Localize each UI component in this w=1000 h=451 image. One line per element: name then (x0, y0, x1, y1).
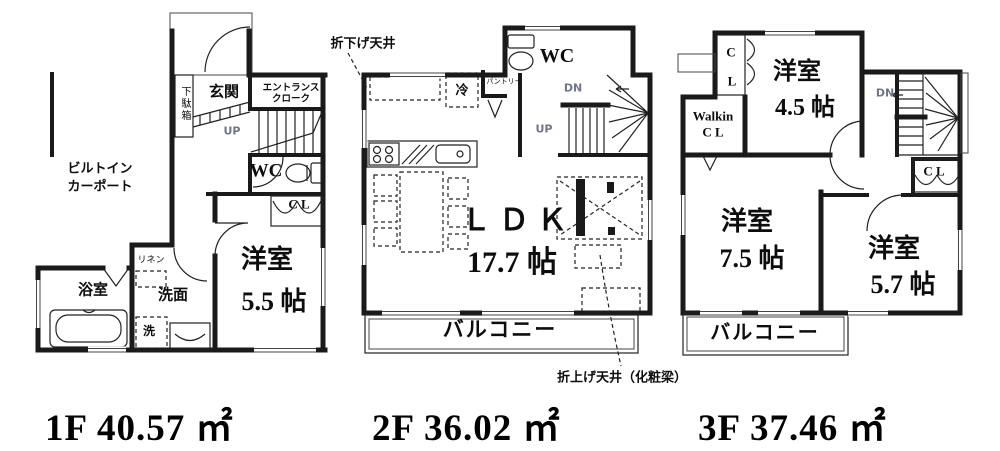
entrance-label: 玄関 (209, 86, 239, 101)
wc-label-2f: WC (540, 46, 574, 66)
floor-area-caption-1f: 1F 40.57 ㎡ (45, 397, 233, 451)
walkin-closet-label-line1: Walkin (693, 110, 733, 123)
washroom-label: 洗面 (158, 289, 188, 304)
shoe-cabinet-label: 下駄箱 (179, 86, 189, 122)
wc-label-1f: WC (250, 162, 283, 181)
pantry-label: パントリー (486, 79, 521, 86)
bedroom-5-5-name-label: 洋室 (241, 247, 293, 273)
floor-plan-canvas: ビルトイン カーポート 玄関 下駄箱 エントランス クローク UP WC C L… (0, 0, 1000, 451)
closet-label-3f-right: C L (923, 165, 944, 178)
closet-c-label-3f: C (726, 46, 735, 59)
stairs-down-label-2f: DN (564, 83, 582, 94)
bedroom-5-7-name-label: 洋室 (868, 236, 920, 262)
bedroom-7-5-name-label: 洋室 (721, 209, 773, 235)
walkin-closet-door-icon (703, 156, 717, 170)
floor-area-caption-2f: 2F 36.02 ㎡ (372, 397, 560, 451)
stairs-up-label-2f: UP (536, 124, 553, 135)
dining-table-icon (374, 172, 468, 252)
kitchen-counter-icon (367, 141, 477, 167)
linen-shelf-icon (136, 271, 166, 287)
bathroom-label: 浴室 (78, 284, 108, 299)
stairs-3f-icon (892, 72, 958, 155)
balcony-label-3f: バルコニー (710, 323, 820, 343)
fridge-label: 冷 (455, 84, 468, 97)
linen-label: リネン (137, 256, 164, 265)
entrance-cloak-label-line2: クローク (272, 94, 310, 104)
carport-label-line1: ビルトイン (67, 162, 132, 175)
toilet-icon-1f (286, 163, 322, 183)
bedroom-5-7-size-label: 5.7 帖 (870, 272, 935, 298)
closet-label-1f: C L (288, 198, 309, 211)
dropped-ceiling-note: 折下げ天井 (330, 37, 395, 50)
floor-area-caption-3f: 3F 37.46 ㎡ (698, 397, 886, 451)
stairs-down-label-3f: DN (876, 88, 894, 99)
bedroom-7-5-size-label: 7.5 帖 (719, 246, 784, 272)
balcony-label-2f: バルコニー (443, 320, 558, 341)
bedroom-4-5-name-label: 洋室 (773, 60, 821, 84)
laundry-label: 洗 (143, 325, 155, 337)
ldk-size-label: 17.7 帖 (467, 248, 557, 278)
bathtub-icon (50, 310, 127, 347)
washbasin-icon (170, 323, 210, 349)
toilet-icon-2f (508, 35, 534, 70)
raised-ceiling-note: 折上げ天井（化粧梁） (557, 371, 687, 384)
stairs-up-label-1f: UP (224, 126, 241, 137)
closet-l-label-3f: L (728, 75, 737, 88)
door-arcs-3f (830, 121, 903, 231)
entrance-cloak-label-line1: エントランス (263, 83, 320, 93)
carport-label-line2: カーポート (67, 180, 132, 193)
bedroom-4-5-size-label: 4.5 帖 (775, 96, 835, 120)
bedroom-5-5-size-label: 5.5 帖 (241, 289, 306, 315)
living-furniture-icon (557, 177, 642, 312)
walkin-closet-label-line2: C L (702, 126, 723, 139)
ldk-name-label: ＬＤＫ (461, 206, 575, 236)
